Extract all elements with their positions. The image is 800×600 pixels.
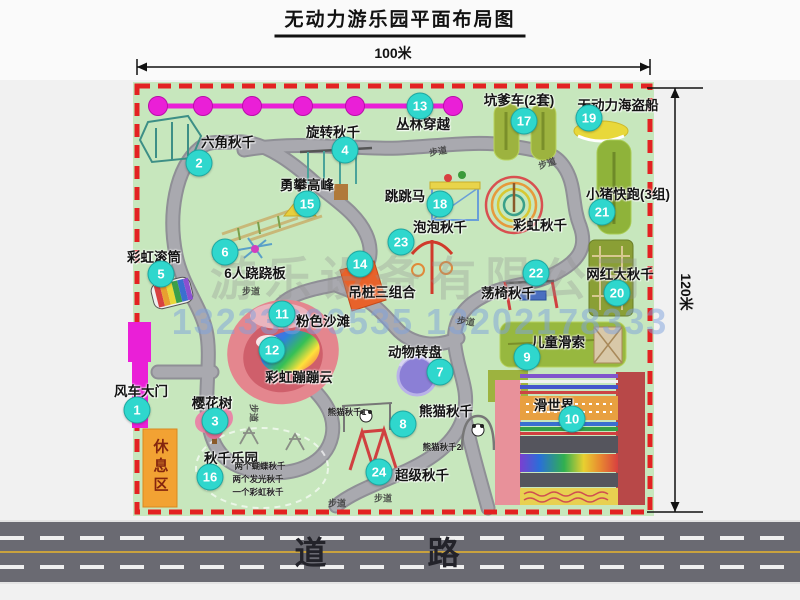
attraction-badge-6: 6 (212, 239, 239, 266)
extra-label-0: 彩虹秋千 (513, 214, 567, 234)
attraction-label-18: 跳跳马 (385, 185, 426, 205)
watermark-phone: 13233800535 13202178333 (172, 301, 668, 343)
attraction-label-9: 儿童滑索 (531, 331, 585, 351)
attraction-badge-7: 7 (427, 359, 454, 386)
attraction-badge-23: 23 (388, 229, 415, 256)
extra-label-2: 熊猫秋千2 (423, 441, 462, 453)
attraction-badge-14: 14 (347, 251, 374, 278)
attraction-label-11: 粉色沙滩 (296, 310, 350, 330)
extra-label-5: 一个彩虹秋千 (232, 486, 283, 498)
attraction-label-23: 泡泡秋千 (413, 216, 467, 236)
attraction-label-7: 动物转盘 (388, 341, 442, 361)
road-label: 道 路 (295, 528, 506, 574)
attraction-badge-21: 21 (589, 199, 616, 226)
walkway-label-6: 步道 (374, 492, 392, 505)
attraction-badge-4: 4 (332, 137, 359, 164)
extra-label-3: 两个蝴蝶秋千 (234, 460, 285, 472)
width-dimension-label: 100米 (374, 43, 411, 63)
walkway-label-2: 步道 (242, 285, 260, 298)
attraction-badge-18: 18 (427, 191, 454, 218)
extra-label-1: 熊猫秋千1 (328, 406, 367, 418)
attraction-badge-2: 2 (186, 150, 213, 177)
attraction-badge-9: 9 (514, 344, 541, 371)
attraction-badge-12: 12 (259, 337, 286, 364)
walkway-label-3: 步道 (248, 404, 261, 422)
attraction-badge-5: 5 (148, 261, 175, 288)
attraction-label-17: 坑爹车(2套) (484, 89, 555, 109)
attraction-badge-3: 3 (202, 408, 229, 435)
attraction-badge-11: 11 (269, 301, 296, 328)
attraction-label-2: 六角秋千 (201, 131, 255, 151)
attraction-badge-19: 19 (576, 105, 603, 132)
park-layout-map: 游乐设备有限公司 13233800535 13202178333 无动力游乐园平… (0, 0, 800, 600)
attraction-badge-13: 13 (407, 93, 434, 120)
attraction-badge-15: 15 (294, 191, 321, 218)
rest-area-label: 休息区 (150, 439, 171, 496)
attraction-badge-1: 1 (124, 397, 151, 424)
attraction-label-14: 吊桩三组合 (348, 281, 416, 301)
attraction-badge-10: 10 (559, 406, 586, 433)
walkway-label-4: 步道 (456, 313, 476, 328)
attraction-label-12: 彩虹蹦蹦云 (265, 366, 333, 386)
attraction-label-24: 超级秋千 (395, 464, 449, 484)
attraction-badge-8: 8 (390, 411, 417, 438)
walkway-label-5: 步道 (328, 497, 346, 510)
attraction-badge-22: 22 (523, 260, 550, 287)
extra-label-4: 两个发光秋千 (232, 473, 283, 485)
attraction-badge-17: 17 (511, 108, 538, 135)
attraction-label-22: 荡椅秋千 (481, 282, 535, 302)
page-title: 无动力游乐园平面布局图 (274, 5, 525, 38)
attraction-badge-24: 24 (366, 459, 393, 486)
attraction-label-6: 6人跷跷板 (224, 262, 286, 282)
attraction-label-8: 熊猫秋千 (419, 400, 473, 420)
attraction-badge-16: 16 (197, 464, 224, 491)
attraction-badge-20: 20 (604, 280, 631, 307)
height-dimension-label: 120米 (676, 273, 696, 310)
